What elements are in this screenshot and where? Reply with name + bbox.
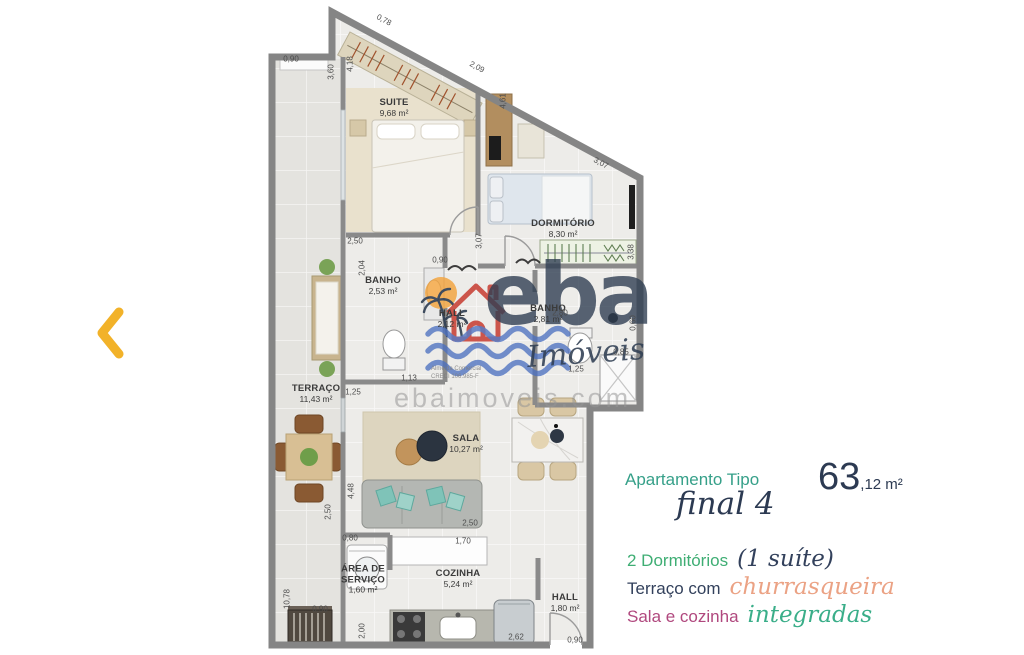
dimension-label: 1,70	[455, 537, 471, 546]
dimension-label: 0,60	[629, 315, 638, 331]
dimension-label: 0,85	[613, 348, 629, 357]
dimension-label: 0,90	[283, 55, 299, 64]
watermark-website: ebaimoveis.com	[394, 383, 631, 414]
feature-row: Terraço comchurrasqueira	[627, 574, 895, 600]
dimension-label: 10,78	[283, 589, 292, 609]
feature-list: 2 Dormitórios(1 suíte)Terraço comchurras…	[627, 546, 895, 628]
dimension-label: 2,04	[358, 260, 367, 276]
chevron-left-icon	[102, 312, 119, 354]
dimension-label: 1,25	[568, 365, 584, 374]
area-fraction: ,12 m²	[860, 476, 903, 493]
dimension-label: 0,90	[567, 636, 583, 645]
suite-window	[341, 110, 345, 200]
dimension-label: 3,07	[475, 233, 484, 249]
dimension-label: 4,61	[499, 93, 508, 109]
washing-machine	[347, 545, 387, 589]
dimension-label: 2,50	[324, 504, 333, 520]
dimension-label: 0,90	[432, 256, 448, 265]
watermark-fine-print: Almeida Comercial CRECI 106.985-F	[431, 366, 503, 382]
dimension-label: 2,80	[552, 309, 568, 318]
dimension-label: 2,62	[508, 633, 524, 642]
feature-row: Sala e cozinhaintegradas	[627, 602, 895, 628]
dimension-label: 0,90	[312, 605, 328, 614]
terrace-glass-door	[341, 398, 345, 432]
area-integer: 63	[818, 458, 860, 496]
apartment-type-script: final 4	[676, 486, 775, 522]
dimension-label: 2,50	[347, 237, 363, 246]
watermark-brand: eba	[484, 252, 650, 338]
dimension-label: 4,48	[347, 483, 356, 499]
dimension-label: 4,18	[346, 56, 355, 72]
tv-panel	[629, 185, 635, 229]
coffee-table-dark	[417, 431, 447, 461]
page: eba Imóveis ebaimoveis.com Almeida Comer…	[0, 0, 1024, 655]
back-arrow-button[interactable]	[92, 306, 128, 360]
dimension-label: 2,50	[462, 519, 478, 528]
apartment-area: 63,12 m²	[818, 458, 903, 496]
dimension-label: 2,00	[358, 623, 367, 639]
island-counter	[388, 537, 487, 565]
dimension-label: 1,25	[345, 388, 361, 397]
terrace-bench	[312, 259, 342, 377]
dormitorio-bed	[488, 174, 592, 224]
dimension-label: 0,80	[342, 534, 358, 543]
dimension-label: 3,38	[627, 244, 636, 260]
feature-row: 2 Dormitórios(1 suíte)	[627, 546, 895, 572]
dimension-label: 1,13	[401, 374, 417, 383]
dimension-label: 3,60	[327, 64, 336, 80]
